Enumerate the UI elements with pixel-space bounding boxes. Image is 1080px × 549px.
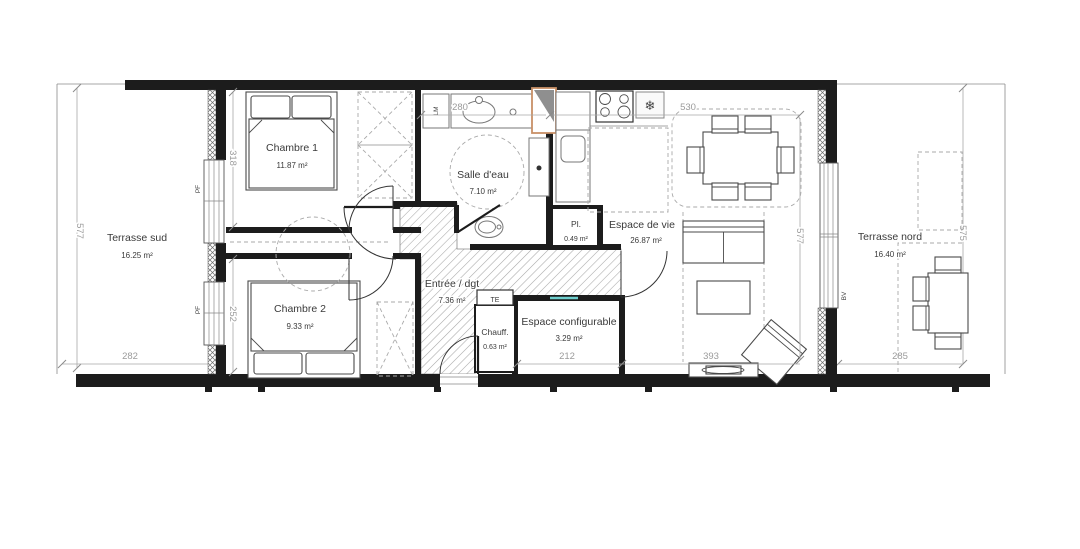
door-sejour: [621, 251, 667, 297]
stove: [596, 91, 633, 122]
room-chauff: TE Chauff. 0.63 m²: [475, 290, 515, 372]
tall-cabinet: [529, 138, 549, 196]
dim-espace-vie-width: 530: [680, 102, 696, 113]
kitchen-block: ❄: [556, 91, 668, 212]
room-placard: Pl. 0.49 m²: [553, 209, 597, 245]
room-area-terrasse-nord: 16.40 m²: [874, 250, 906, 259]
terrace-table-set: [913, 257, 968, 349]
room-area-chauff: 0.63 m²: [483, 344, 507, 351]
room-area-terrasse-sud: 16.25 m²: [121, 251, 153, 260]
technical-duct: [532, 88, 556, 133]
living-set: [683, 212, 806, 384]
label-lave-linge: LM: [433, 106, 440, 115]
tv-stand: [689, 363, 758, 377]
label-porte-fenetre-1: PF: [195, 185, 202, 193]
sofa: [683, 221, 764, 263]
room-label-chambre-1: Chambre 1: [266, 142, 318, 154]
window-pf-2: PF: [195, 282, 224, 345]
room-area-placard: 0.49 m²: [564, 236, 588, 243]
terrace-planter-zone: [918, 152, 962, 230]
kitchen-sink: [556, 130, 590, 202]
room-area-salle-deau: 7.10 m²: [469, 187, 496, 196]
room-chambre-1: 318 Chambre 1 11.87 m²: [227, 88, 412, 231]
room-area-espace-de-vie: 26.87 m²: [630, 236, 662, 245]
wardrobe-dashed: [377, 302, 413, 376]
dim-sejour-width: 393: [703, 351, 719, 362]
room-chambre-2: 252 Chambre 2 9.33 m²: [227, 255, 413, 378]
window-pf-1: PF: [195, 160, 224, 243]
dim-chambre-1-height: 318: [227, 150, 238, 166]
dining-table: [703, 132, 778, 184]
floor-plan-drawing: 577 282 Terrasse sud 16.25 m² 575 285 Te…: [0, 0, 1080, 549]
dim-terrasse-nord-width: 285: [892, 351, 908, 362]
room-area-chambre-1: 11.87 m²: [277, 161, 308, 170]
room-label-entree: Entrée / dgt: [425, 278, 479, 290]
label-baie-vitree: BV: [841, 291, 848, 300]
entrance-threshold: [440, 374, 478, 387]
room-terrasse-sud: 577 282 Terrasse sud 16.25 m²: [57, 84, 220, 374]
fridge-icon: ❄: [645, 98, 656, 113]
fridge: ❄: [636, 92, 664, 118]
room-area-espace-configurable: 3.29 m²: [555, 334, 582, 343]
room-area-entree: 7.36 m²: [438, 296, 465, 305]
room-label-chambre-2: Chambre 2: [274, 303, 326, 315]
dim-terrasse-nord-height: 575: [957, 225, 968, 241]
room-label-salle-deau: Salle d'eau: [457, 169, 509, 181]
dim-terrasse-sud-width: 282: [122, 351, 138, 362]
label-porte-fenetre-2: PF: [195, 306, 202, 314]
room-area-chambre-2: 9.33 m²: [286, 322, 313, 331]
room-label-chauff: Chauff.: [481, 327, 508, 337]
room-label-terrasse-sud: Terrasse sud: [107, 232, 167, 244]
floor-plan-page: 577 282 Terrasse sud 16.25 m² 575 285 Te…: [0, 0, 1080, 549]
dim-espace-configurable-width: 212: [559, 351, 575, 362]
room-label-terrasse-nord: Terrasse nord: [858, 231, 922, 243]
dim-espace-vie-height: 577: [794, 228, 805, 244]
dim-chambre-2-height: 252: [227, 306, 238, 322]
room-label-espace-configurable: Espace configurable: [521, 316, 616, 328]
wardrobe-dashed: [358, 92, 412, 198]
washing-machine-slot: LM: [423, 94, 449, 128]
room-label-espace-de-vie: Espace de vie: [609, 219, 675, 231]
room-espace-configurable: Espace configurable 3.29 m² 212: [513, 298, 626, 374]
bay-window-bv: BV: [820, 163, 848, 308]
dim-terrasse-sud-height: 577: [74, 223, 85, 239]
kitchen-zone-dashed: [588, 128, 668, 212]
room-label-placard: Pl.: [571, 219, 581, 229]
room-terrasse-nord: 575 285 Terrasse nord 16.40 m²: [834, 84, 1005, 374]
label-tableau-electrique: TE: [491, 297, 500, 304]
dining-set: [672, 109, 801, 207]
dim-salle-eau-width: 280: [452, 102, 468, 113]
double-bed: [246, 92, 337, 190]
coffee-table: [697, 281, 750, 314]
